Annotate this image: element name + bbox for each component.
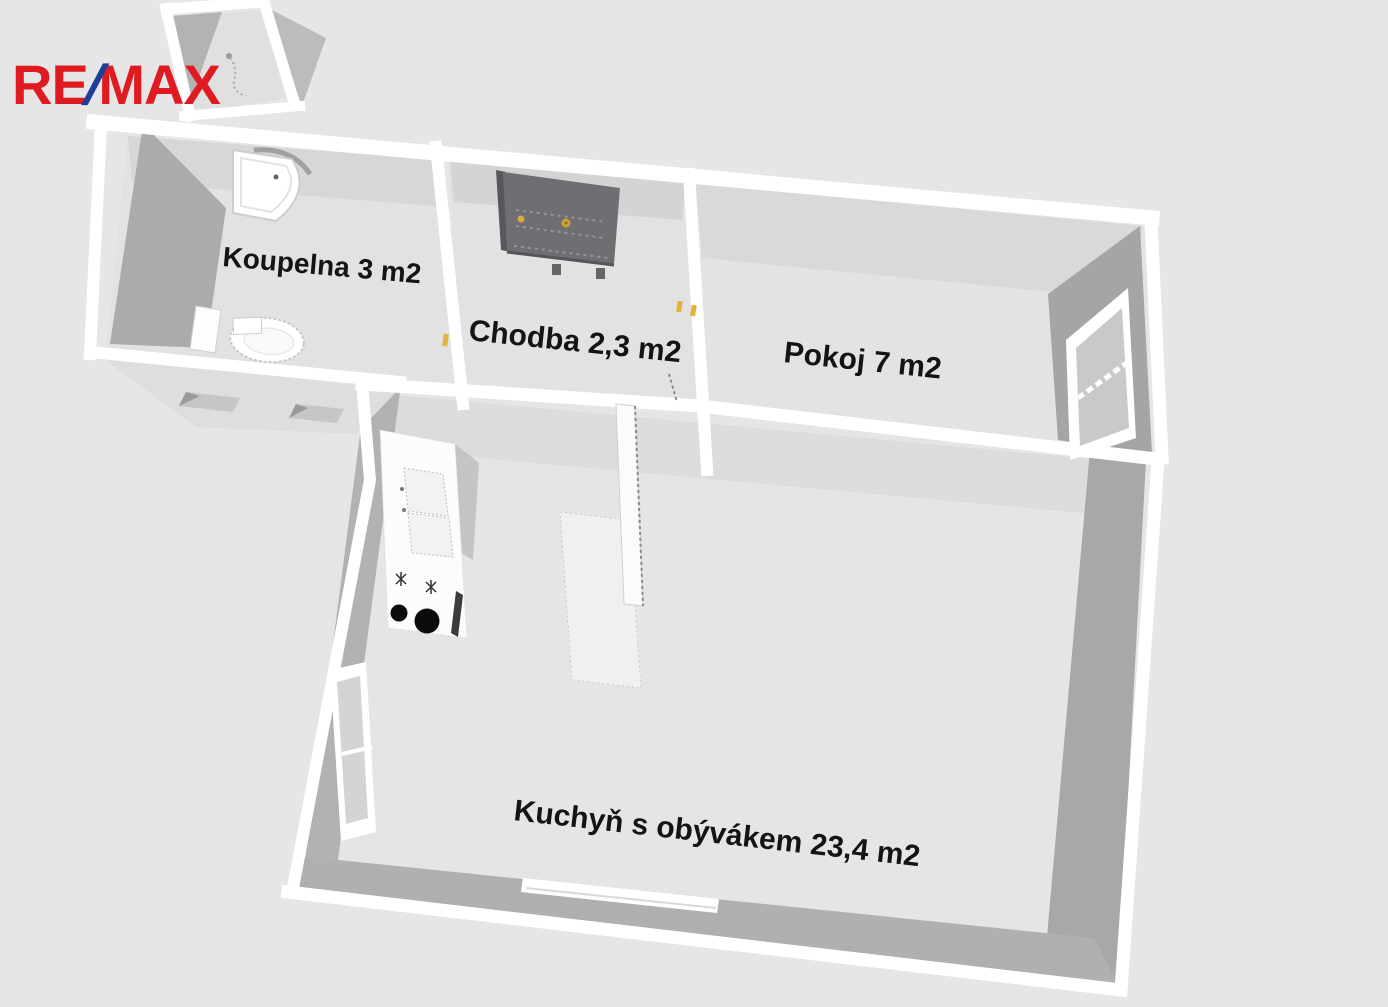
wardrobe-leg [552,264,561,275]
wardrobe-leg [596,268,605,279]
wardrobe-knob-center [565,222,568,225]
stove-burner-large [415,609,440,634]
bathroom-cabinet [190,306,221,353]
bathtub-drain [274,175,279,180]
toilet-tank [231,314,263,337]
faucet-dot [400,487,404,491]
wc-top-wall [166,2,264,9]
stove-burner-small [391,605,408,622]
sink-basin-lower [408,513,453,557]
faucet-dot [402,508,406,512]
floorplan-canvas: Koupelna 3 m2 Chodba 2,3 m2 Pokoj 7 m2 K… [0,0,1388,1007]
kitchen-counter [380,430,479,638]
logo-max: MAX [98,53,219,116]
logo-re: RE [12,53,88,116]
wardrobe-knob [518,216,525,223]
sink-basin-upper [404,468,448,516]
floorplan-screenshot: Koupelna 3 m2 Chodba 2,3 m2 Pokoj 7 m2 K… [0,0,1388,1007]
remax-logo: RE/MAX [12,52,220,117]
